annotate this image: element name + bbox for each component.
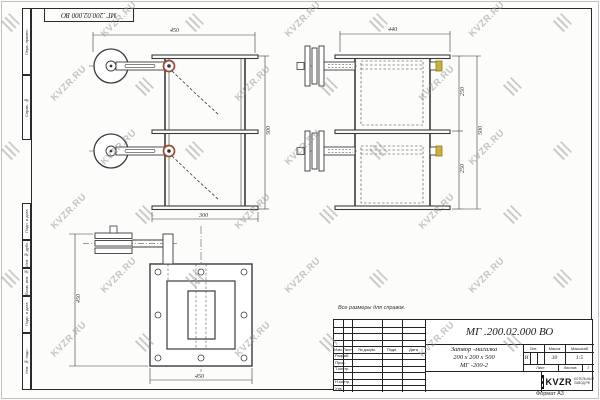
frame-cell-vzam-inv: Взам. инв. № — [22, 268, 31, 296]
drawing-sheet: Перв. примен. Справ. № Подп. и дата Инв.… — [0, 0, 600, 400]
kvzr-logo-icon — [541, 375, 544, 389]
frame-label: Перв. примен. — [23, 9, 30, 74]
plan-view-drawing: 450 450 — [55, 222, 305, 394]
tb-col-podp: Подп. — [382, 346, 402, 353]
frame-cell-perv-primen: Перв. примен. — [22, 8, 31, 75]
tb-sheets-value: 1 — [582, 364, 594, 371]
tb-sheets-header: Листов — [558, 364, 582, 371]
tb-scale-header: Масштаб — [565, 344, 594, 352]
dim-plan-height: 450 — [75, 294, 82, 303]
title-block: Изм. Лист № докум. Подп. Дата Разраб. Пр… — [333, 319, 593, 391]
dim-side-upper: 250 — [460, 87, 466, 96]
dim-front-width: 450 — [170, 27, 179, 34]
tb-col-data: Дата — [402, 346, 425, 353]
frame-label: Подп. и дата — [23, 297, 30, 332]
dim-side-lower: 250 — [460, 164, 466, 173]
side-view-drawing: 440 250 250 500 — [295, 18, 555, 230]
front-view-drawing: 450 500 300 — [55, 18, 305, 230]
frame-label: Подп. и дата — [23, 204, 30, 239]
dim-plan-width: 450 — [195, 373, 204, 380]
tb-name-line3: МГ -200-2 — [460, 362, 488, 370]
frame-cell-sprav-no: Справ. № — [22, 75, 31, 140]
kvzr-logo-subtitle: КОТЕЛЬНЫЙ ЗАВОД РФ — [574, 378, 594, 385]
kvzr-logo-text: KVZR — [546, 377, 573, 387]
tb-lit-header: Лит. — [523, 344, 544, 352]
tb-mass-value: 30 — [544, 352, 565, 364]
tb-sheet-header: Лист — [523, 364, 558, 371]
frame-label: Инв. № подл. — [23, 334, 30, 389]
frame-cell-podp-data-2: Подп. и дата — [22, 296, 31, 333]
tb-name-line2: 200 х 200 х 500 — [453, 354, 495, 362]
frame-cell-inv-dubl: Инв. № дубл. — [22, 240, 31, 268]
tb-name-line1: Затвор -мигалка — [451, 346, 497, 354]
tb-mass-header: Масса — [544, 344, 565, 352]
tb-col-docnum: № докум. — [352, 346, 382, 353]
dim-side-height: 500 — [478, 126, 484, 135]
frame-label: Взам. инв. № — [23, 269, 30, 295]
format-label: Формат А3 — [536, 391, 564, 397]
frame-label: Инв. № дубл. — [23, 241, 30, 267]
tb-doc-number: МГ .200.02.000 ВО — [425, 320, 594, 344]
frame-cell-podp-data-1: Подп. и дата — [22, 203, 31, 240]
dim-front-height: 500 — [266, 126, 272, 135]
tb-row-utv: Утв. — [334, 385, 353, 392]
tb-row-tkontr: Т.контр. — [334, 366, 353, 373]
tb-part-name: Затвор -мигалка 200 х 200 х 500 МГ -200-… — [425, 344, 523, 371]
dim-side-width: 440 — [388, 26, 397, 33]
reference-note: Все размеры для справок. — [338, 305, 405, 311]
tb-scale-value: 1:5 — [565, 352, 594, 364]
frame-cell-inv-podl: Инв. № подл. — [22, 333, 31, 390]
dim-front-base: 300 — [198, 213, 208, 219]
tb-logo-cell: KVZR КОТЕЛЬНЫЙ ЗАВОД РФ — [541, 371, 594, 392]
tb-lit-value: И — [523, 352, 530, 364]
kvzr-logo-sub2: ЗАВОД РФ — [574, 382, 594, 386]
frame-label: Справ. № — [23, 76, 30, 139]
